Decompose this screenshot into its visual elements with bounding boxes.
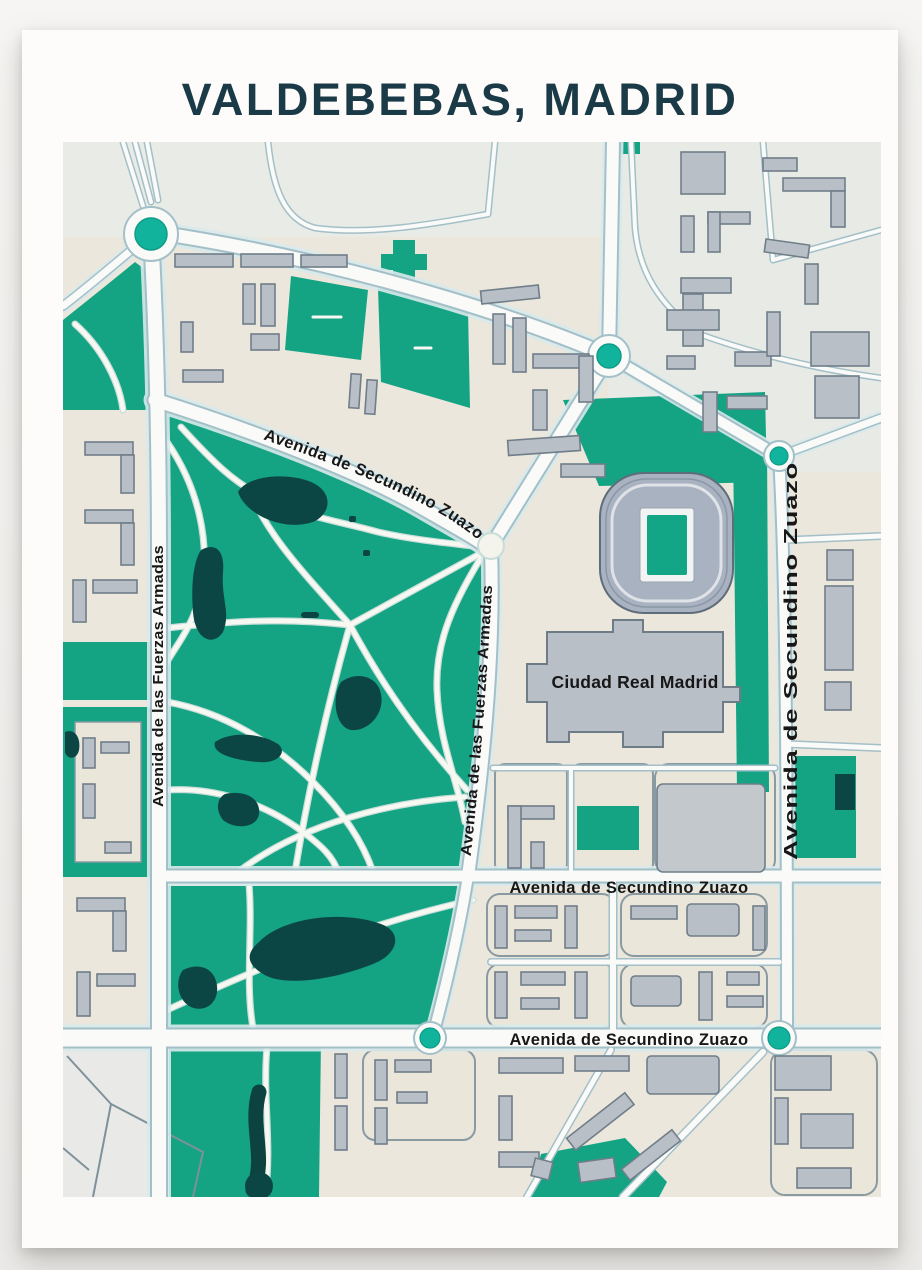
street-label-fuerzas-left: Avenida de las Fuerzas Armadas xyxy=(150,545,167,807)
roundabout xyxy=(414,1022,446,1054)
roundabout xyxy=(588,335,630,377)
poster-title: VALDEBEBAS, MADRID xyxy=(22,74,898,126)
green-top-left xyxy=(63,262,153,410)
roundabout xyxy=(124,207,178,261)
map-poster: VALDEBEBAS, MADRID xyxy=(22,30,898,1248)
pond xyxy=(192,547,226,640)
plaza-circle xyxy=(478,533,504,559)
stadium-pitch xyxy=(647,515,687,575)
street-label-secundino-right: Avenida de Secundino Zuazo xyxy=(781,462,801,860)
map-canvas: Avenida de Secundino Zuazo Avenida de la… xyxy=(63,142,881,1197)
poi-label-ciudad-real-madrid: Ciudad Real Madrid xyxy=(552,672,719,692)
street-label-secundino-bottom: Avenida de Secundino Zuazo xyxy=(510,1031,749,1049)
street-label-secundino-mid: Avenida de Secundino Zuazo xyxy=(510,879,749,897)
stadium xyxy=(600,473,733,613)
green-stadium-strip xyxy=(733,442,769,792)
roundabout xyxy=(762,1021,796,1055)
park-bottom-strip xyxy=(169,1038,321,1197)
